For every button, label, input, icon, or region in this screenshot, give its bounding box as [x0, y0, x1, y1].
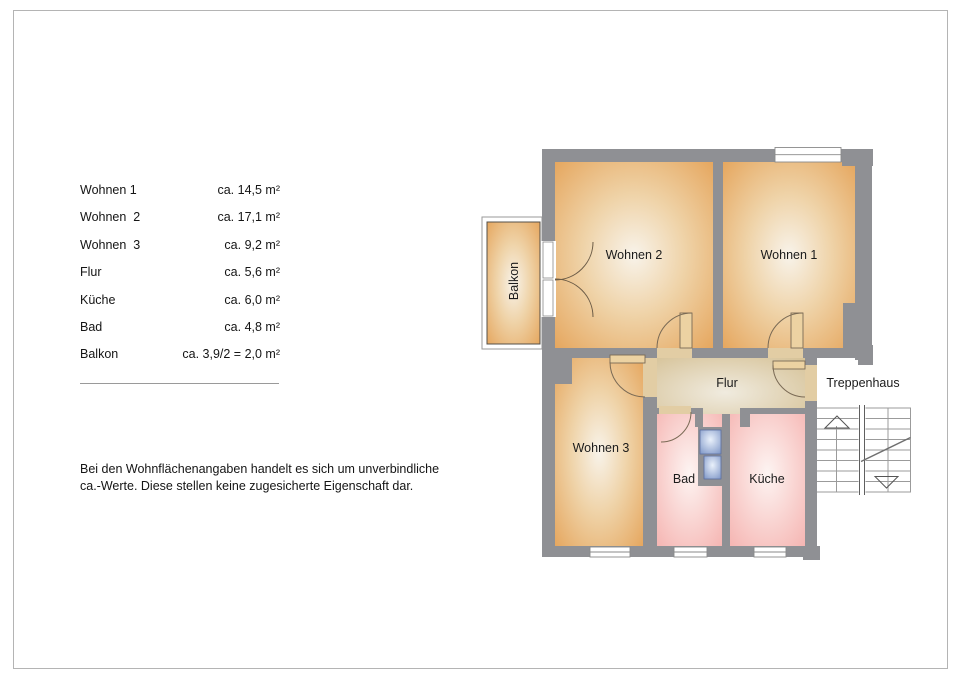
- window-wohnen3: [590, 547, 630, 557]
- shaft-block-top: [700, 430, 721, 454]
- window-top: [775, 148, 841, 163]
- doorway-wohnen1: [768, 348, 803, 358]
- balkon-door-leaf-bottom: [543, 280, 553, 316]
- label-wohnen3: Wohnen 3: [573, 441, 630, 455]
- label-wohnen1: Wohnen 1: [761, 248, 818, 262]
- floorplan-page: Wohnen 1 ca. 14,5 m² Wohnen 2 ca. 17,1 m…: [0, 0, 960, 679]
- label-wohnen2: Wohnen 2: [606, 248, 663, 262]
- balkon-door-leaf-top: [543, 242, 553, 278]
- shaft-block-bottom: [704, 456, 721, 479]
- doorway-wohnen2: [657, 348, 692, 358]
- stair-handrail: [859, 405, 866, 495]
- label-flur: Flur: [716, 376, 738, 390]
- label-kueche: Küche: [749, 472, 784, 486]
- doorway-bad: [659, 406, 691, 414]
- staircase: [817, 405, 911, 495]
- label-bad: Bad: [673, 472, 695, 486]
- stair-down-arrow: [875, 477, 898, 489]
- label-balkon: Balkon: [507, 262, 521, 300]
- window-kueche: [754, 547, 786, 557]
- doorway-entrance: [805, 365, 817, 401]
- label-treppenhaus: Treppenhaus: [826, 376, 899, 390]
- window-bad: [674, 547, 707, 557]
- floorplan-drawing: Wohnen 2 Wohnen 1 Wohnen 3 Flur Bad Küch…: [0, 0, 960, 679]
- doorway-wohnen3: [643, 358, 657, 397]
